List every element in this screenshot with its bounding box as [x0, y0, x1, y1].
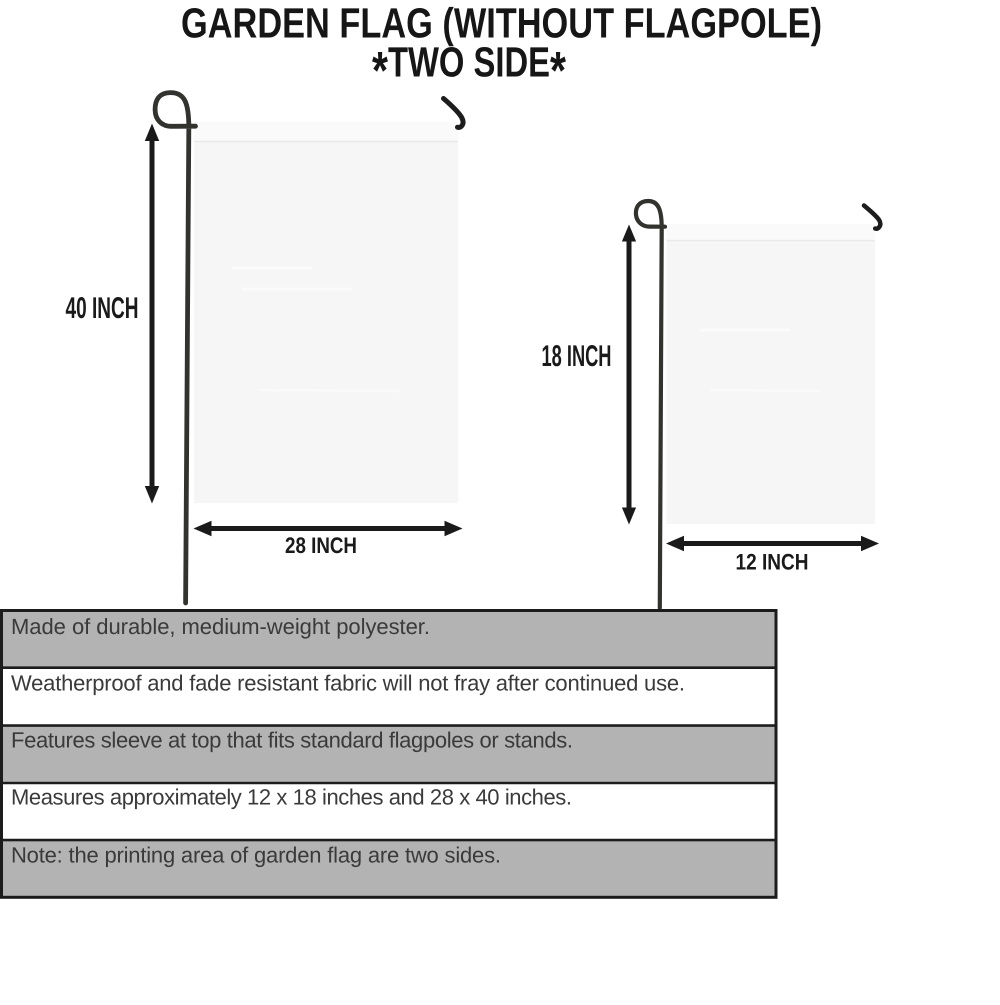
svg-text:18 INCH: 18 INCH: [542, 340, 612, 373]
svg-text:Note: the printing area of gar: Note: the printing area of garden flag a…: [11, 843, 501, 868]
svg-text:Weatherproof and fade resistan: Weatherproof and fade resistant fabric w…: [11, 671, 685, 696]
svg-text:40 INCH: 40 INCH: [66, 292, 139, 325]
svg-text:12 INCH: 12 INCH: [736, 550, 809, 575]
svg-text:28 INCH: 28 INCH: [285, 533, 357, 558]
svg-text:Made of durable, medium-weight: Made of durable, medium-weight polyester…: [11, 614, 430, 639]
svg-text:Measures approximately 12 x 18: Measures approximately 12 x 18 inches an…: [11, 785, 572, 810]
svg-text:Features sleeve at top that fi: Features sleeve at top that fits standar…: [11, 728, 573, 753]
